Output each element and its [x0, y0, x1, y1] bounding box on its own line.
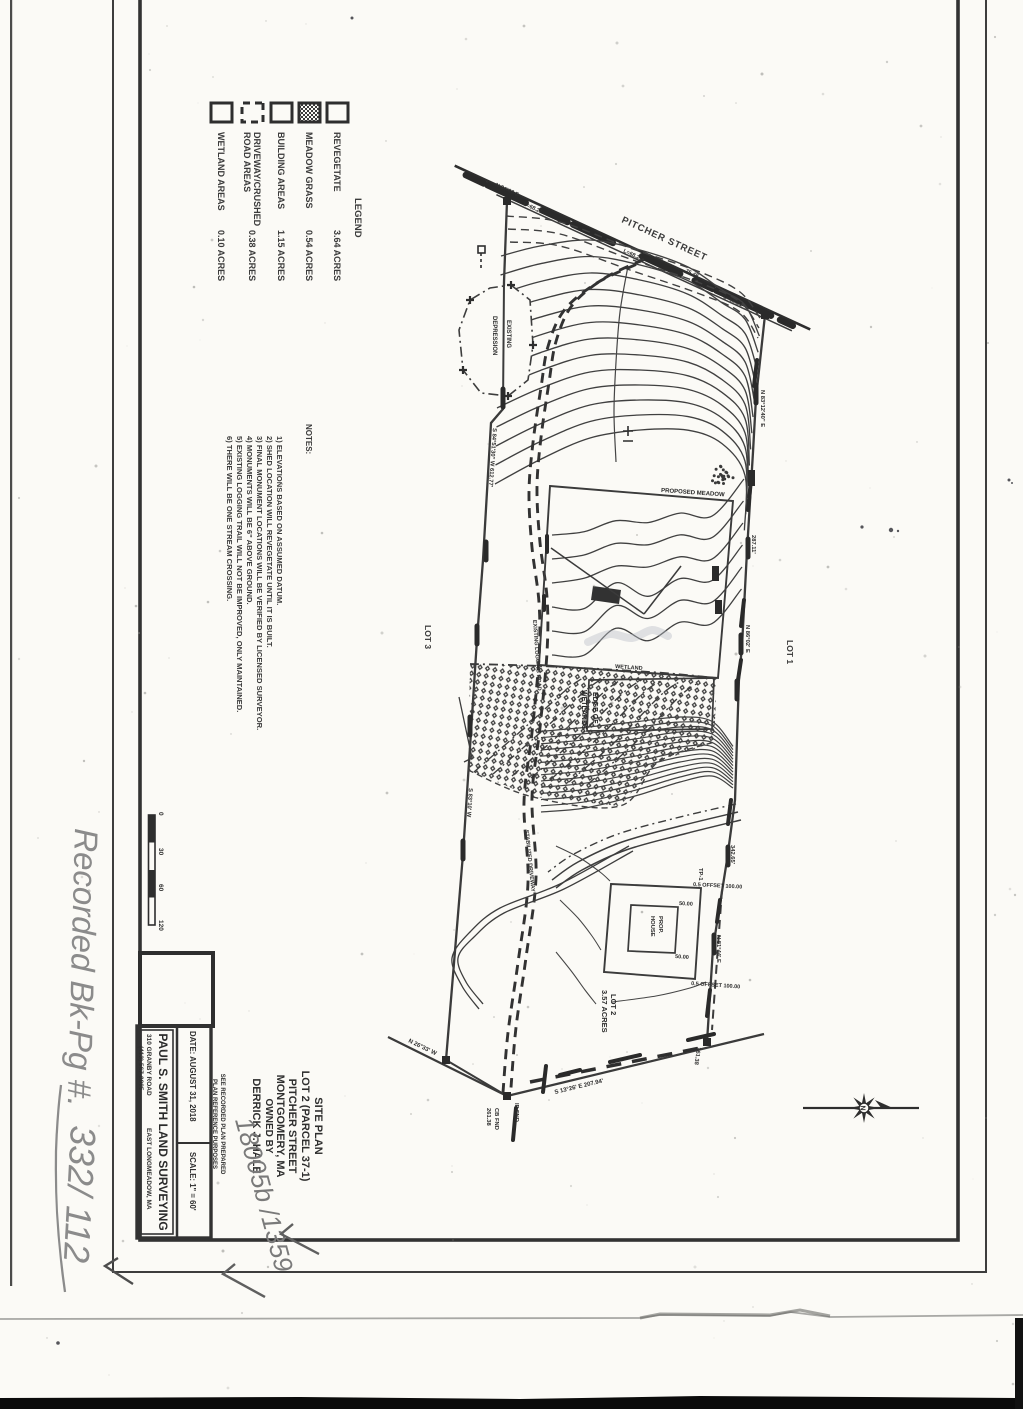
svg-text:PITCHER STREET: PITCHER STREET	[286, 1079, 298, 1174]
svg-text:LOT 3: LOT 3	[423, 625, 433, 649]
svg-text:4) MONUMENTS WILL BE 6" ABOVE: 4) MONUMENTS WILL BE 6" ABOVE GROUND.	[245, 436, 254, 605]
svg-text:DATE: AUGUST 31, 2018: DATE: AUGUST 31, 2018	[188, 1031, 197, 1122]
svg-text:N 86°02' E: N 86°02' E	[744, 625, 750, 653]
svg-text:EDGE OF: EDGE OF	[591, 692, 598, 724]
svg-text:0.10 ACRES: 0.10 ACRES	[216, 230, 226, 281]
svg-text:NOTES:: NOTES:	[304, 424, 313, 454]
svg-text:310 GRANBY ROAD: 310 GRANBY ROAD	[145, 1034, 152, 1096]
svg-text:HOUSE: HOUSE	[649, 916, 655, 937]
svg-text:LOT 2: LOT 2	[609, 994, 618, 1015]
svg-text:REVEGETATE: REVEGETATE	[332, 132, 342, 192]
svg-text:N: N	[859, 1105, 866, 1110]
svg-text:CB FND: CB FND	[493, 1108, 499, 1130]
svg-text:BUILDING AREAS: BUILDING AREAS	[276, 132, 286, 209]
svg-text:PROP.: PROP.	[657, 916, 663, 934]
svg-text:IP FND: IP FND	[513, 1103, 519, 1122]
svg-text:N 83°12'40" E: N 83°12'40" E	[759, 390, 765, 427]
svg-text:DEPRESSION: DEPRESSION	[491, 316, 497, 355]
svg-text:3.64 ACRES: 3.64 ACRES	[332, 230, 342, 281]
svg-text:SEE RECORDED PLAN PREPARED: SEE RECORDED PLAN PREPARED	[219, 1074, 225, 1175]
svg-text:261.38: 261.38	[485, 1108, 491, 1127]
svg-text:60: 60	[157, 884, 164, 892]
svg-text:MEADOW GRASS: MEADOW GRASS	[304, 132, 314, 209]
svg-text:50.00: 50.00	[679, 901, 693, 908]
svg-text:50.00: 50.00	[675, 954, 689, 961]
svg-text:N 81°44' E: N 81°44' E	[715, 935, 721, 963]
svg-text:(413) 567-0085: (413) 567-0085	[137, 1046, 144, 1091]
svg-text:PAUL S. SMITH LAND SURVEYING: PAUL S. SMITH LAND SURVEYING	[156, 1033, 170, 1230]
svg-text:EAST LONGMEADOW, MA: EAST LONGMEADOW, MA	[145, 1128, 152, 1210]
svg-text:DRIVEWAY/CRUSHED: DRIVEWAY/CRUSHED	[252, 132, 262, 227]
svg-text:LOT 1: LOT 1	[785, 640, 795, 664]
svg-text:3.57 ACRES: 3.57 ACRES	[600, 990, 609, 1033]
svg-text:0.38 ACRES: 0.38 ACRES	[247, 230, 257, 281]
svg-text:LOT 2 (PARCEL 37-1): LOT 2 (PARCEL 37-1)	[299, 1071, 311, 1182]
svg-text:5) EXISTING LOGGING TRAIL WIL: 5) EXISTING LOGGING TRAIL WILL NOT BE IM…	[235, 436, 244, 712]
svg-text:2) SHED LOCATION WILL REVEGET: 2) SHED LOCATION WILL REVEGETATE UNTIL I…	[265, 436, 274, 648]
svg-text:120: 120	[157, 920, 164, 931]
svg-text:TP-1: TP-1	[697, 868, 703, 881]
svg-text:1) ELEVATIONS BASED ON ASSUME: 1) ELEVATIONS BASED ON ASSUMED DATUM.	[275, 436, 284, 605]
svg-text:SCALE: 1" = 60': SCALE: 1" = 60'	[188, 1152, 197, 1211]
svg-text:WETLAND AREAS: WETLAND AREAS	[216, 132, 226, 211]
svg-text:342.65': 342.65'	[729, 845, 735, 865]
svg-text:LEGEND: LEGEND	[352, 198, 363, 238]
svg-text:SITE PLAN: SITE PLAN	[312, 1097, 324, 1155]
svg-text:6) THERE WILL BE ONE STREAM C: 6) THERE WILL BE ONE STREAM CROSSING.	[225, 436, 234, 601]
svg-text:3) FINAL MONUMENT LOCATIONS W: 3) FINAL MONUMENT LOCATIONS WILL BE VERI…	[255, 436, 264, 730]
svg-text:0.54 ACRES: 0.54 ACRES	[304, 230, 314, 281]
svg-text:WETLANDS: WETLANDS	[580, 690, 587, 730]
svg-text:0: 0	[157, 812, 164, 816]
svg-text:Recorded Bk-Pg #.: Recorded Bk-Pg #.	[61, 828, 105, 1108]
svg-text:287.11': 287.11'	[750, 535, 756, 554]
svg-text:ROAD AREAS: ROAD AREAS	[242, 132, 252, 192]
svg-text:332/ 112: 332/ 112	[56, 1125, 104, 1264]
svg-text:1.15 ACRES: 1.15 ACRES	[276, 230, 286, 281]
svg-text:MONTGOMERY, MA: MONTGOMERY, MA	[274, 1075, 286, 1178]
svg-text:30: 30	[157, 848, 164, 856]
svg-text:EXISTING: EXISTING	[505, 320, 511, 348]
